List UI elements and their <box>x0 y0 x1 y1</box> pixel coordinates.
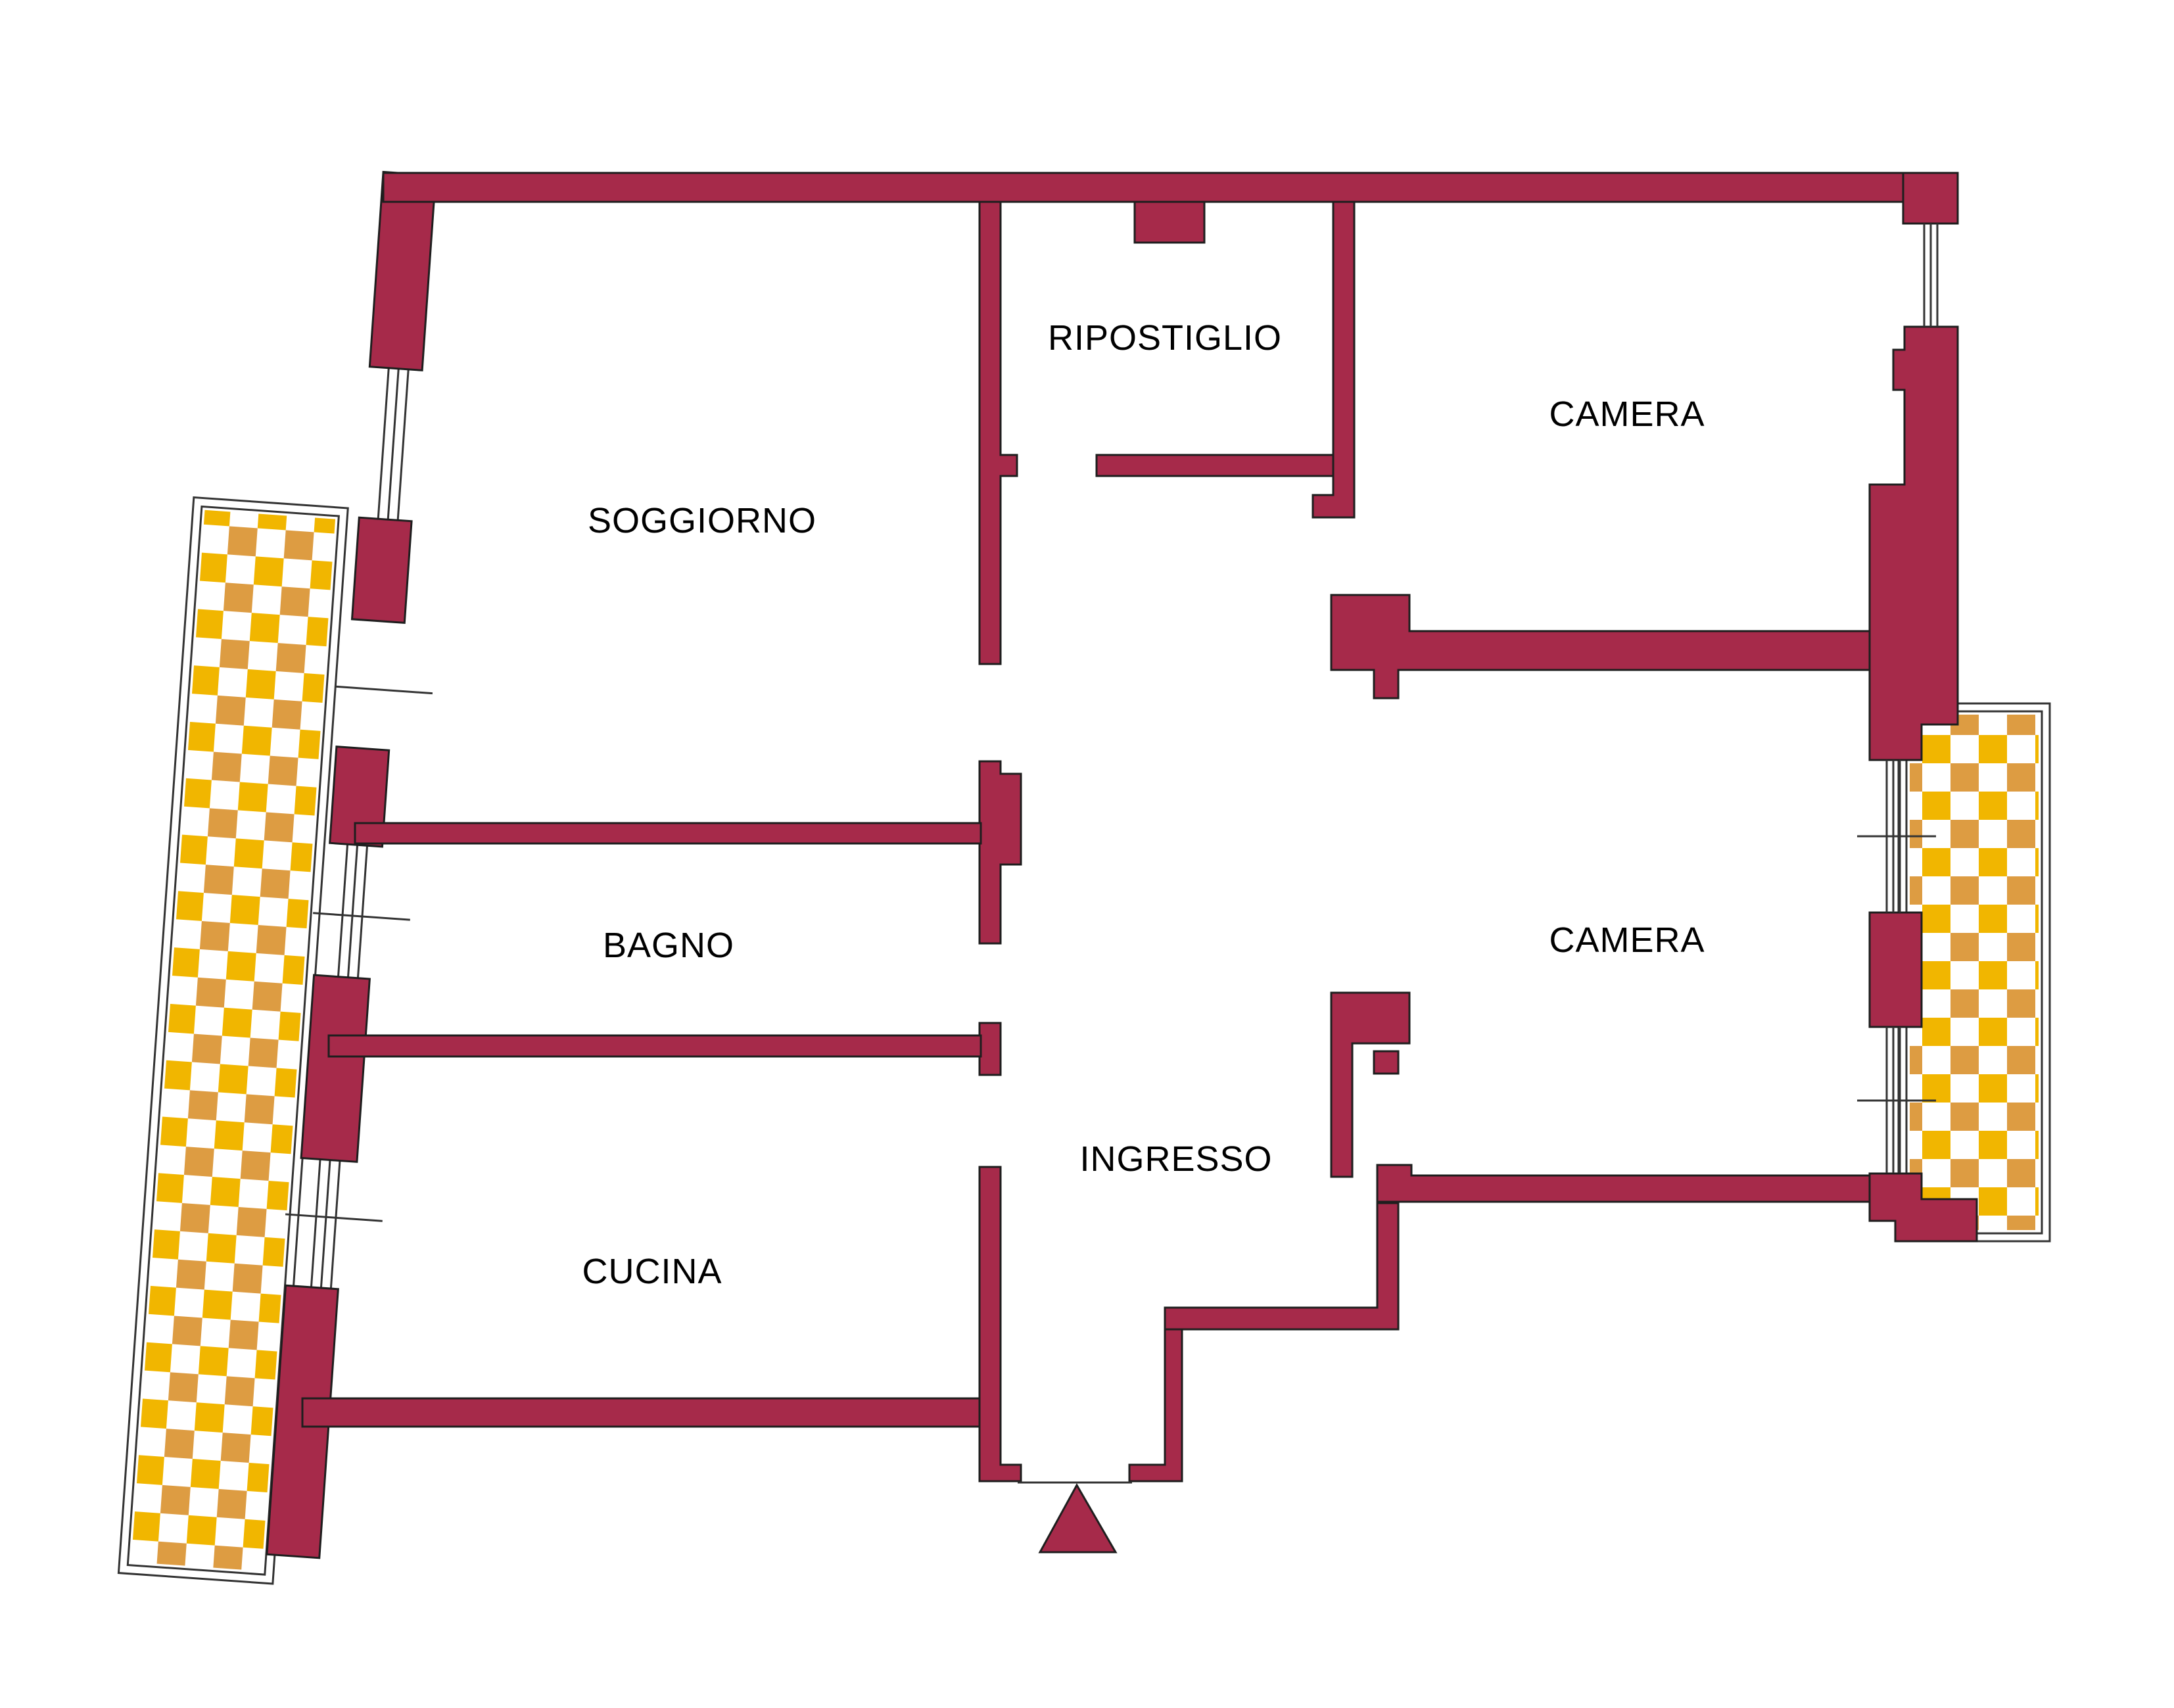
balcony-right-tiles <box>1910 715 2039 1230</box>
wall-corridor-jamb-upper <box>980 761 1021 943</box>
wall-right-mid <box>1870 913 1922 1027</box>
entrance-arrow-icon <box>1040 1485 1116 1552</box>
room-label-ingresso: INGRESSO <box>1079 1139 1272 1179</box>
wall-ripostiglio-bottom <box>1097 455 1354 476</box>
wall-right-upper <box>1870 327 1958 760</box>
wall-corner-northeast <box>1903 173 1958 224</box>
floor-plan: SOGGIORNO RIPOSTIGLIO CAMERA BAGNO INGRE… <box>0 0 2174 1708</box>
sill-tick-cucina <box>285 1214 383 1221</box>
window-bagno <box>309 842 415 982</box>
wall-cucina-bottom <box>302 1398 980 1427</box>
wall-jamb-bagno-cucina <box>301 975 369 1162</box>
wall-bagno-cucina <box>329 1035 981 1056</box>
wall-camera-sud-door-jamb <box>1374 1051 1398 1074</box>
room-label-camera-nord: CAMERA <box>1549 394 1705 434</box>
wall-ingresso-step <box>1165 1203 1398 1329</box>
left-wall-and-balcony <box>118 160 468 1590</box>
wall-entrance-right <box>1129 1329 1182 1481</box>
wall-camera-sud-left <box>1331 993 1409 1177</box>
floor-plan-page: SOGGIORNO RIPOSTIGLIO CAMERA BAGNO INGRE… <box>0 0 2174 1708</box>
wall-jamb-soggiorno <box>352 517 412 623</box>
wall-camera-sud-bottom <box>1377 1165 1870 1202</box>
room-label-ripostiglio: RIPOSTIGLIO <box>1048 318 1282 358</box>
room-label-soggiorno: SOGGIORNO <box>588 501 816 540</box>
wall-soggiorno-bagno <box>355 823 981 843</box>
wall-soggiorno-right <box>980 202 1017 664</box>
sill-tick-soggiorno <box>335 686 433 693</box>
walls <box>302 173 1977 1481</box>
wall-camera-divider <box>1331 595 1870 698</box>
wall-top <box>383 173 1903 202</box>
room-label-cucina: CUCINA <box>582 1252 722 1291</box>
wall-cucina-right <box>980 1167 1021 1481</box>
wall-corridor-jamb-lower <box>980 1023 1001 1075</box>
room-label-camera-sud: CAMERA <box>1549 920 1705 960</box>
wall-notch-ripostiglio <box>1135 202 1204 243</box>
window-camera-nord <box>1924 224 1937 327</box>
room-label-bagno: BAGNO <box>603 926 734 965</box>
